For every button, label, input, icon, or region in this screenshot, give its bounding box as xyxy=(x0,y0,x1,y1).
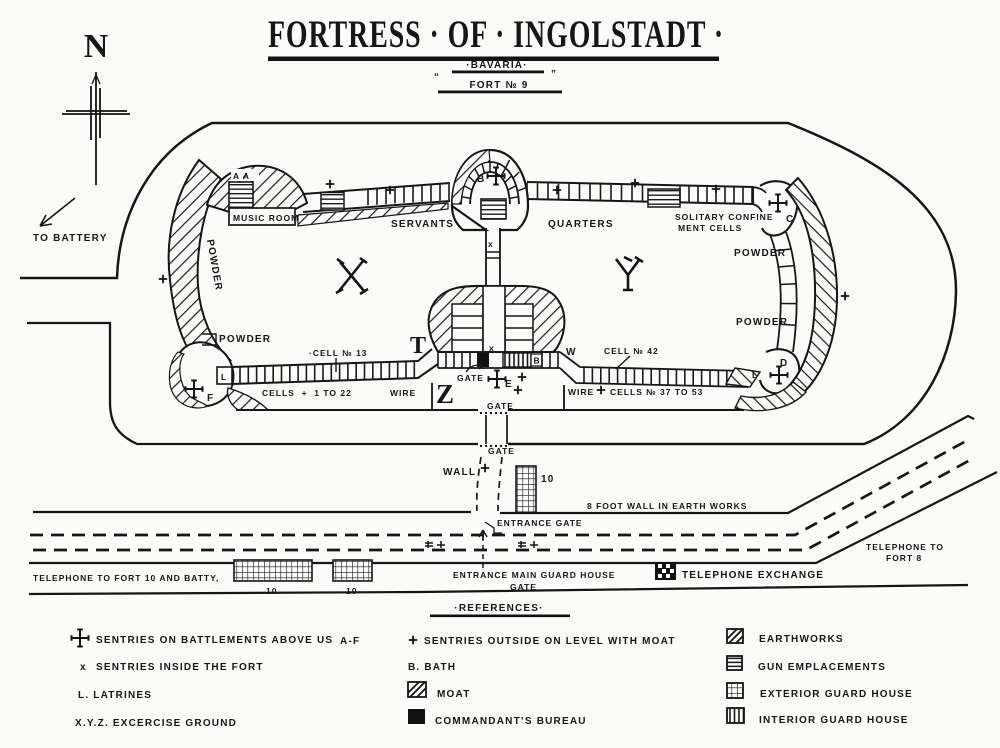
svg-text:·CELL № 13: ·CELL № 13 xyxy=(309,348,368,358)
svg-text:L: L xyxy=(221,372,227,382)
svg-text:WALL: WALL xyxy=(443,467,476,478)
svg-text:TELEPHONE EXCHANGE: TELEPHONE EXCHANGE xyxy=(682,570,824,581)
svg-text:C: C xyxy=(786,214,794,225)
svg-text:Z: Z xyxy=(436,379,454,409)
svg-text:POWDER: POWDER xyxy=(734,248,786,259)
svg-text:SENTRIES OUTSIDE ON LEVEL WITH: SENTRIES OUTSIDE ON LEVEL WITH MOAT xyxy=(424,636,676,647)
svg-text:TELEPHONE TO: TELEPHONE TO xyxy=(866,542,944,552)
svg-text:FORTRESS · OF · INGOLSTADT ·: FORTRESS · OF · INGOLSTADT · xyxy=(268,14,724,57)
svg-text:WIRE: WIRE xyxy=(568,387,594,397)
svg-text:WIRE: WIRE xyxy=(390,388,416,398)
svg-text:MUSIC ROOM: MUSIC ROOM xyxy=(233,213,299,223)
svg-text:SERVANTS: SERVANTS xyxy=(391,219,454,230)
svg-text:TO BATTERY: TO BATTERY xyxy=(33,233,108,244)
svg-text:E: E xyxy=(505,379,513,390)
svg-text:COMMANDANT’S BUREAU: COMMANDANT’S BUREAU xyxy=(435,716,587,727)
svg-text:D: D xyxy=(780,358,788,369)
svg-text:SOLITARY CONFINE: SOLITARY CONFINE xyxy=(675,212,774,222)
svg-text:A-F: A-F xyxy=(340,636,360,647)
svg-text:x: x xyxy=(80,662,87,673)
svg-text:INTERIOR GUARD HOUSE: INTERIOR GUARD HOUSE xyxy=(759,715,909,726)
svg-text:8 FOOT WALL IN EARTH WORKS: 8 FOOT WALL IN EARTH WORKS xyxy=(587,501,747,511)
svg-text:POWDER: POWDER xyxy=(736,317,788,328)
svg-text:L. LATRINES: L. LATRINES xyxy=(78,690,152,701)
svg-text:ENTRANCE GATE: ENTRANCE GATE xyxy=(497,518,583,528)
svg-text:10: 10 xyxy=(541,474,555,485)
svg-text:GATE: GATE xyxy=(488,446,515,456)
svg-text:F: F xyxy=(207,393,214,404)
svg-text:GUN EMPLACEMENTS: GUN EMPLACEMENTS xyxy=(758,662,886,673)
svg-text:FORT 8: FORT 8 xyxy=(886,553,922,563)
svg-text:CELL № 42: CELL № 42 xyxy=(604,346,659,356)
svg-text:EARTHWORKS: EARTHWORKS xyxy=(759,634,844,645)
svg-text:GATE: GATE xyxy=(510,582,537,592)
svg-text:B. BATH: B. BATH xyxy=(408,662,456,673)
svg-text:A A: A A xyxy=(233,171,250,181)
svg-text:X.Y.Z. EXCERCISE GROUND: X.Y.Z. EXCERCISE GROUND xyxy=(75,718,237,729)
svg-text:FORT № 9: FORT № 9 xyxy=(469,80,528,91)
svg-text:ENTRANCE MAIN GUARD HOUSE: ENTRANCE MAIN GUARD HOUSE xyxy=(453,570,615,580)
svg-text:10: 10 xyxy=(266,586,277,596)
svg-text:10: 10 xyxy=(346,586,357,596)
svg-text:QUARTERS: QUARTERS xyxy=(548,219,614,230)
svg-text:T: T xyxy=(410,333,426,359)
svg-text:POWDER: POWDER xyxy=(219,334,271,345)
svg-text:MOAT: MOAT xyxy=(437,689,471,700)
svg-text:EXTERIOR GUARD HOUSE: EXTERIOR GUARD HOUSE xyxy=(760,689,913,700)
svg-text:CELLS + 1 TO 22: CELLS + 1 TO 22 xyxy=(262,388,352,398)
svg-text:B: B xyxy=(534,356,541,366)
svg-text:TELEPHONE TO FORT 10 AND BATTY: TELEPHONE TO FORT 10 AND BATTY, xyxy=(33,573,219,583)
svg-text:GATE: GATE xyxy=(487,401,514,411)
svg-text:x: x xyxy=(488,239,494,249)
svg-text:SENTRIES ON BATTLEMENTS ABOVE: SENTRIES ON BATTLEMENTS ABOVE US xyxy=(96,635,333,646)
svg-text:N: N xyxy=(84,28,109,65)
svg-text:“: “ xyxy=(434,72,440,83)
svg-text:W: W xyxy=(566,347,577,358)
svg-text:GATE: GATE xyxy=(457,373,484,383)
svg-text:·REFERENCES·: ·REFERENCES· xyxy=(454,603,543,614)
svg-text:SENTRIES INSIDE THE FORT: SENTRIES INSIDE THE FORT xyxy=(96,662,264,673)
svg-text:L: L xyxy=(752,370,758,380)
svg-text:”: ” xyxy=(551,69,557,80)
svg-text:CELLS № 37 TO 53: CELLS № 37 TO 53 xyxy=(610,387,703,397)
svg-text:·BAVARIA·: ·BAVARIA· xyxy=(466,60,528,71)
svg-text:MENT CELLS: MENT CELLS xyxy=(678,223,742,233)
svg-text:B: B xyxy=(477,174,485,185)
